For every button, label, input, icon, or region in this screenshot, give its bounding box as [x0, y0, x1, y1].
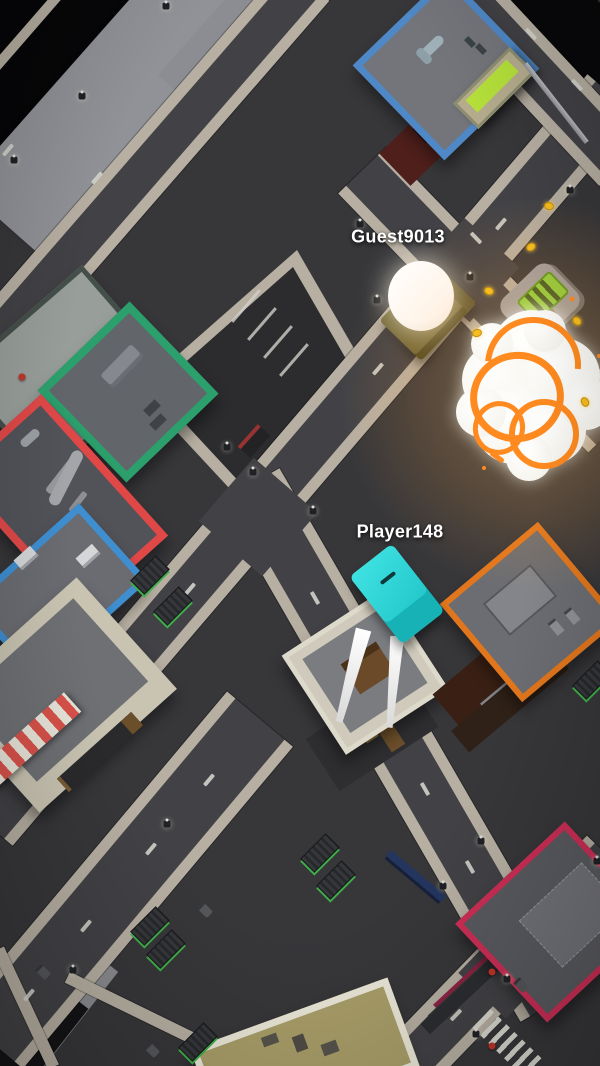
green-bench	[316, 860, 356, 900]
trash-can	[144, 1042, 160, 1058]
street-lamp	[594, 858, 600, 865]
crosswalk	[472, 1009, 543, 1066]
street-lamp	[473, 1031, 480, 1038]
street-lamp	[79, 93, 86, 100]
street-lamp	[224, 444, 231, 451]
bottom-tan-building-roof	[190, 977, 420, 1066]
street-lamp	[440, 883, 447, 890]
street-lamp	[310, 508, 317, 515]
fire-hydrant	[19, 374, 26, 381]
fire-hydrant	[489, 969, 496, 976]
explosion-spark	[570, 297, 575, 302]
street-lamp	[250, 469, 257, 476]
trash-can	[197, 902, 213, 918]
game-viewport[interactable]: Guest9013 Player148	[0, 0, 600, 1066]
street-lamp	[164, 821, 171, 828]
player-name-label: Player148	[357, 522, 444, 543]
street-lamp	[70, 967, 77, 974]
street-lamp	[11, 157, 18, 164]
green-bench	[572, 660, 600, 700]
explosion-spark	[482, 466, 486, 470]
street-lamp	[478, 838, 485, 845]
player-name-label: Guest9013	[351, 227, 445, 248]
street-lamp	[567, 187, 574, 194]
street-lamp	[163, 3, 170, 10]
street-lamp	[504, 976, 511, 983]
fire-hydrant	[489, 1043, 496, 1050]
